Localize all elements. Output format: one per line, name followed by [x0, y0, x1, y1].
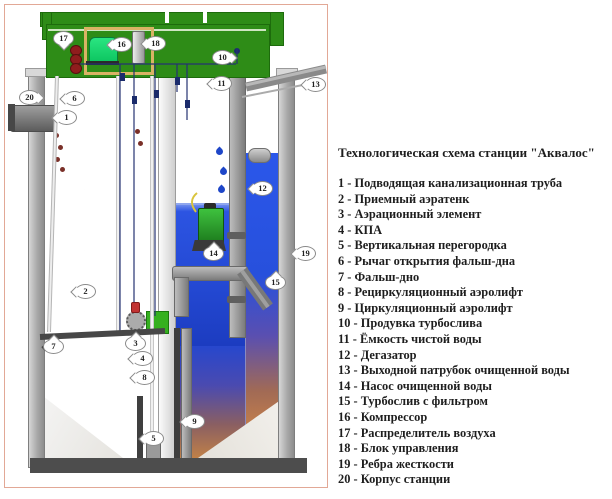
legend-item: 20 - Корпус станции [338, 472, 610, 488]
callout-number: 14 [209, 248, 218, 258]
callout-15: 15 [265, 275, 286, 290]
vertical-partition [137, 396, 143, 458]
pipe-coupling [227, 296, 246, 303]
left-wall-cap [25, 68, 47, 77]
inlet-sewage-pipe [10, 105, 56, 132]
legend-item: 16 - Компрессор [338, 410, 610, 426]
legend-item: 2 - Приемный аэратенк [338, 192, 610, 208]
callout-number: 10 [218, 52, 227, 62]
right-wall-cap [276, 68, 298, 77]
recirculation-airlift-downpipe [174, 277, 189, 317]
tank-right-wall [278, 74, 295, 468]
inlet-droplet [55, 157, 60, 162]
callout-number: 3 [133, 338, 137, 348]
callout-20: 20 [19, 90, 40, 105]
callout-number: 6 [72, 93, 76, 103]
lid-groove [48, 29, 266, 31]
legend-title: Технологическая схема станции "Аквалос" [338, 145, 610, 161]
legend-item: 9 - Циркуляционный аэролифт [338, 301, 610, 317]
tank-left-wall [28, 74, 45, 468]
legend-item: 4 - КПА [338, 223, 610, 239]
callout-number: 18 [151, 38, 160, 48]
compressor-base [86, 61, 119, 65]
callout-17: 17 [53, 31, 74, 46]
callout-11: 11 [211, 76, 232, 91]
legend-item: 5 - Вертикальная перегородка [338, 238, 610, 254]
legend-item: 11 - Ёмкость чистой воды [338, 332, 610, 348]
inlet-droplet [54, 133, 59, 138]
callout-19: 19 [295, 246, 316, 261]
callout-number: 5 [151, 433, 155, 443]
callout-18: 18 [145, 36, 166, 51]
callout-8: 8 [134, 370, 155, 385]
air-valve [70, 63, 82, 74]
callout-9: 9 [184, 414, 205, 429]
overflow-droplet [138, 141, 143, 146]
legend-item: 14 - Насос очищенной воды [338, 379, 610, 395]
legend-item: 8 - Рециркуляционный аэролифт [338, 285, 610, 301]
legend-item: 7 - Фальш-дно [338, 270, 610, 286]
legend-item: 1 - Подводящая канализационная труба [338, 176, 610, 192]
air-distributor [70, 45, 82, 72]
aeration-gear-fitting [126, 311, 146, 331]
degasator-inlet-cylinder [248, 148, 271, 163]
circulation-airlift-wall [174, 328, 180, 458]
turbo-drain-purge-valve [234, 48, 240, 54]
aeration-element [146, 311, 169, 334]
clean-water-pump [198, 208, 224, 244]
callout-number: 11 [217, 78, 225, 88]
pipe-coupling [227, 232, 246, 239]
screenshot-root: 1 2 3 4 5 6 7 8 9 10 11 12 13 14 15 16 1… [0, 0, 612, 499]
legend-item: 15 - Турбослив с фильтром [338, 394, 610, 410]
circulation-airlift-pipe [181, 328, 192, 460]
legend-item: 10 - Продувка турбослива [338, 316, 610, 332]
callout-14: 14 [203, 246, 224, 261]
aeration-valve-cap [131, 302, 140, 313]
inlet-droplet [58, 145, 63, 150]
callout-10: 10 [212, 50, 233, 65]
legend-item: 13 - Выходной патрубок очищенной воды [338, 363, 610, 379]
legend-item: 17 - Распределитель воздуха [338, 426, 610, 442]
callout-4: 4 [132, 351, 153, 366]
callout-number: 20 [25, 92, 34, 102]
legend-item: 18 - Блок управления [338, 441, 610, 457]
callout-number: 13 [311, 79, 320, 89]
legend-list: 1 - Подводящая канализационная труба 2 -… [338, 176, 610, 488]
callout-number: 16 [117, 39, 126, 49]
lid-notch [203, 12, 207, 23]
legend-item: 3 - Аэрационный элемент [338, 207, 610, 223]
callout-number: 15 [271, 277, 280, 287]
callout-number: 19 [301, 248, 310, 258]
callout-16: 16 [111, 37, 132, 52]
legend-item: 19 - Ребра жесткости [338, 457, 610, 473]
callout-number: 9 [192, 416, 196, 426]
legend-item: 12 - Дегазатор [338, 348, 610, 364]
inlet-pipe-cap [8, 104, 15, 131]
callout-number: 1 [64, 112, 68, 122]
callout-12: 12 [252, 181, 273, 196]
callout-6: 6 [64, 91, 85, 106]
callout-number: 4 [140, 353, 144, 363]
callout-number: 2 [83, 286, 87, 296]
callout-5: 5 [143, 431, 164, 446]
overflow-droplet [135, 129, 140, 134]
callout-2: 2 [75, 284, 96, 299]
callout-number: 17 [59, 33, 68, 43]
station-base [30, 458, 307, 473]
lid-right-lip [270, 12, 284, 46]
legend-item: 6 - Рычаг открытия фальш-дна [338, 254, 610, 270]
inlet-droplet [60, 167, 65, 172]
callout-3: 3 [125, 336, 146, 351]
lid-notch [165, 12, 169, 23]
callout-13: 13 [305, 77, 326, 92]
callout-7: 7 [43, 339, 64, 354]
callout-number: 7 [51, 341, 55, 351]
callout-number: 12 [258, 183, 267, 193]
callout-1: 1 [56, 110, 77, 125]
callout-number: 8 [142, 372, 146, 382]
